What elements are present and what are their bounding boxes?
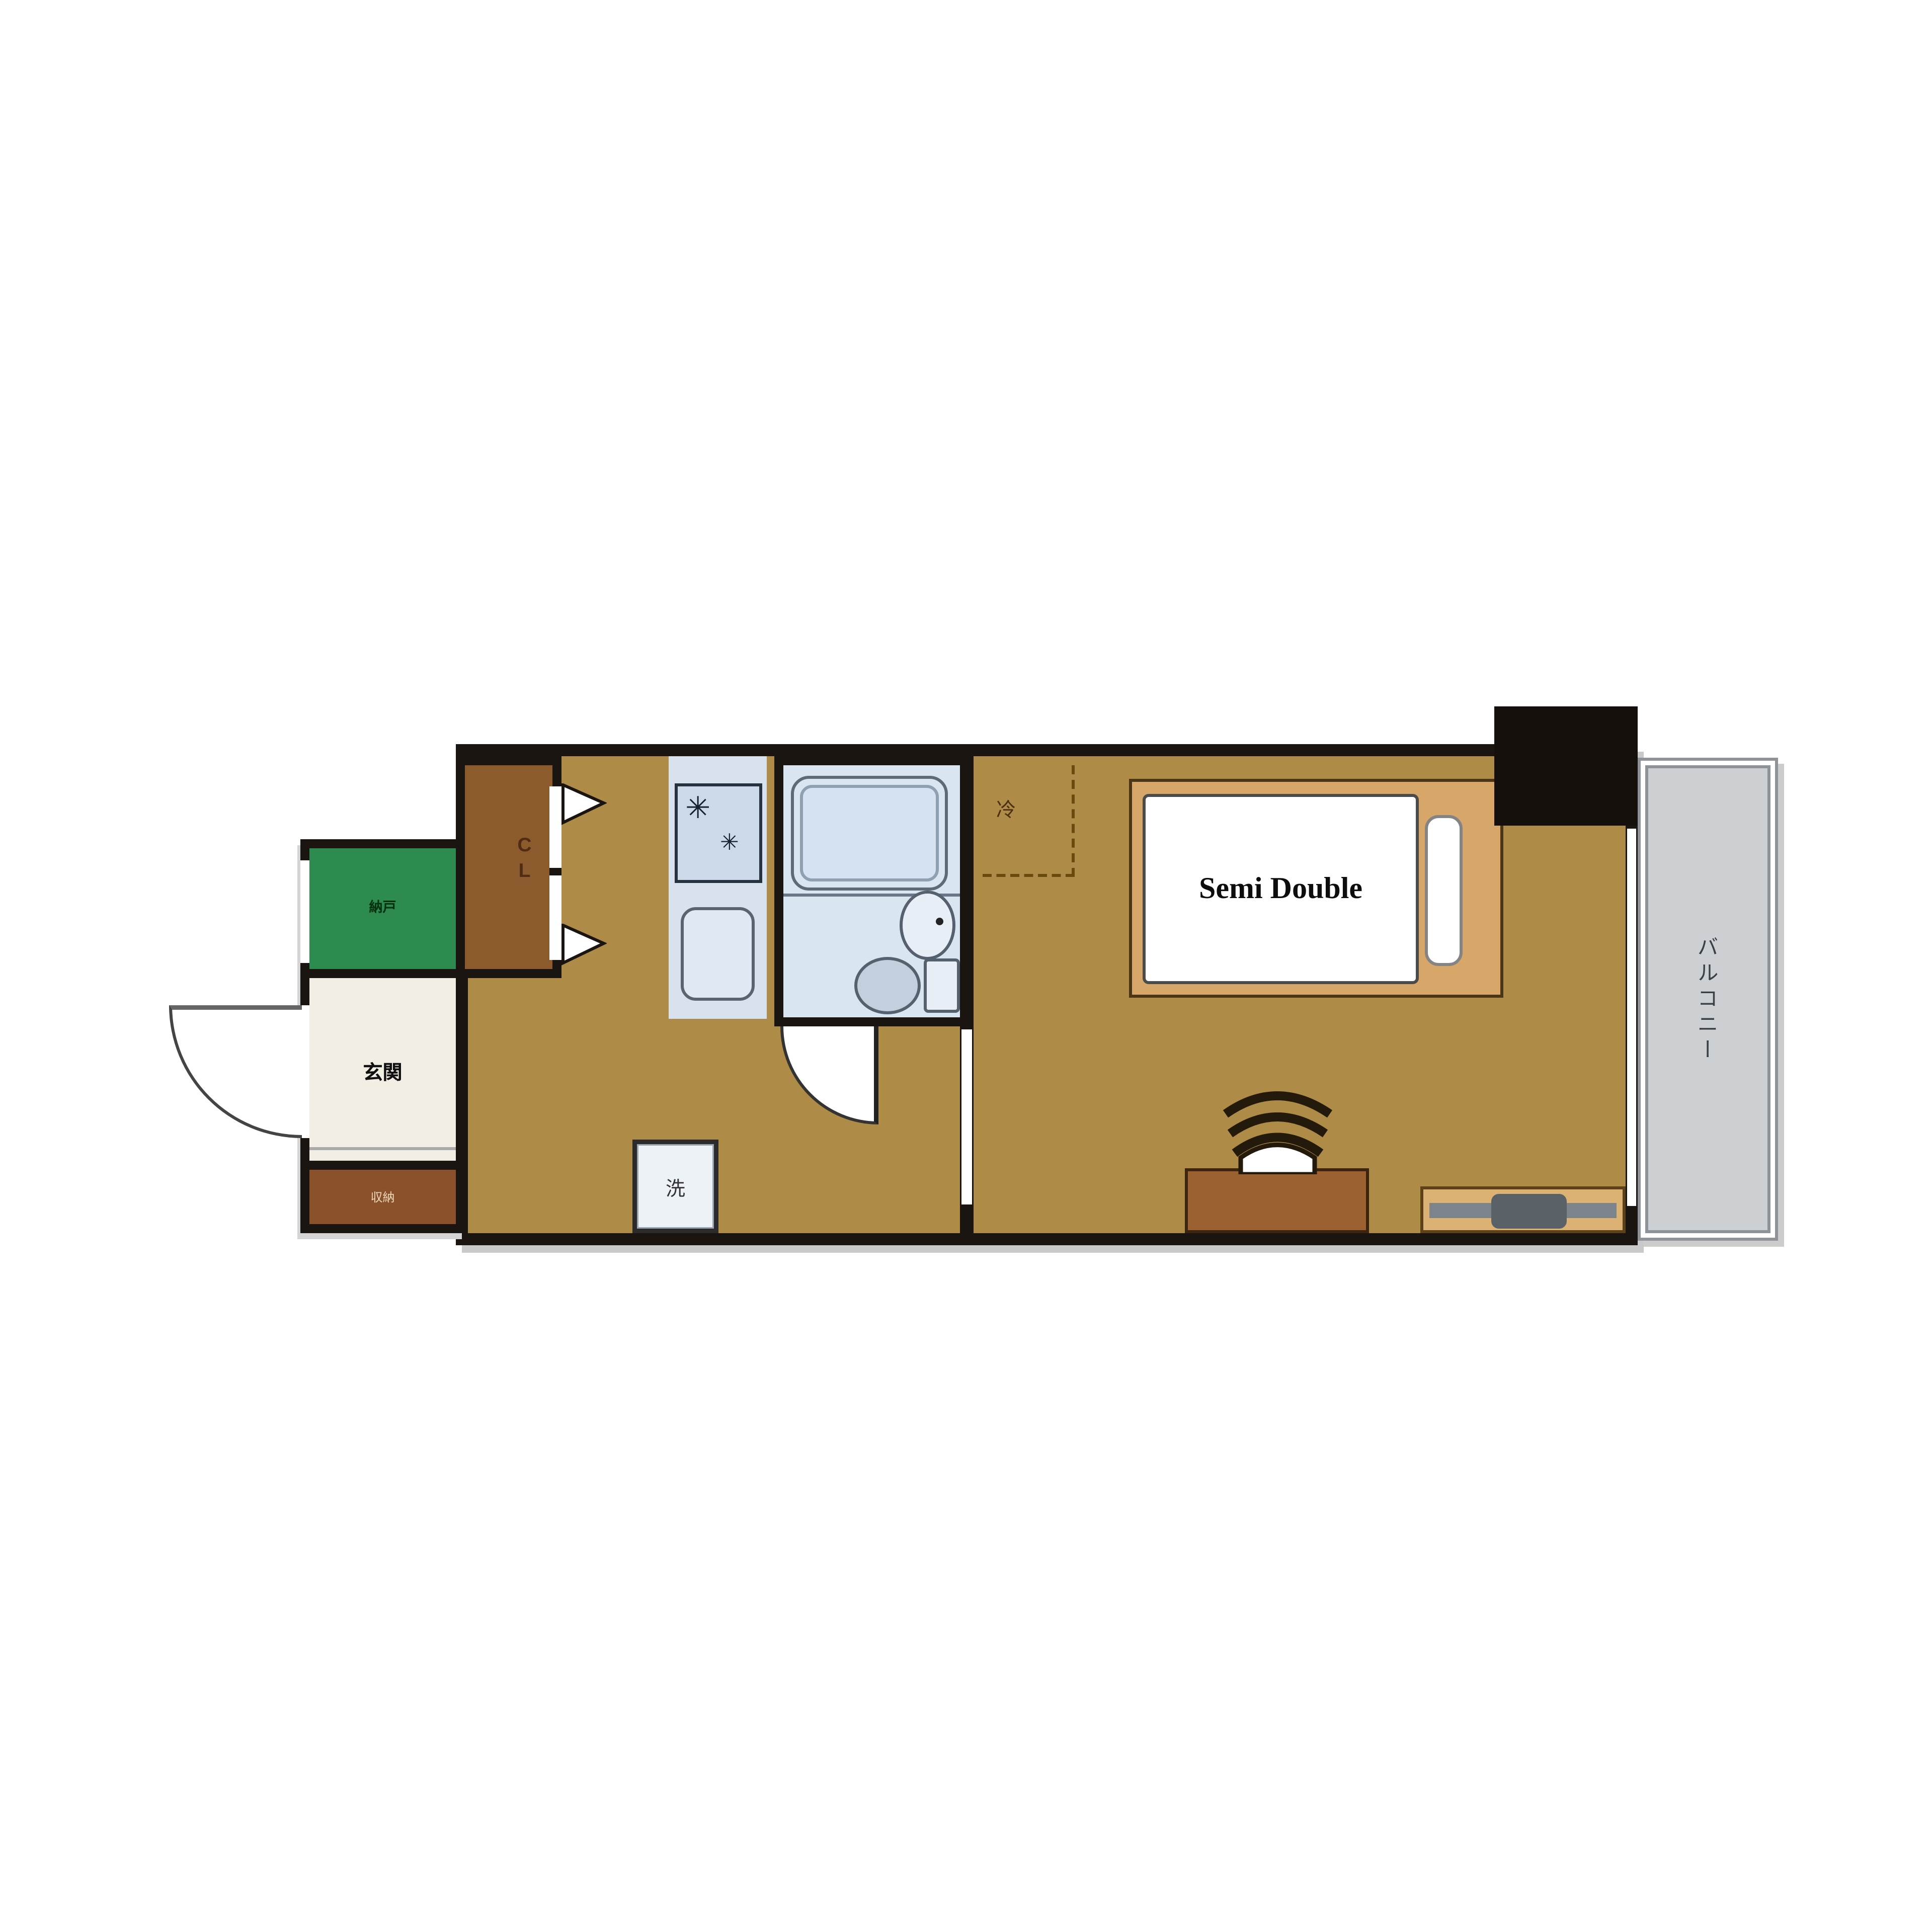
closet-bifold-door-icon	[561, 924, 607, 966]
toilet-bowl	[854, 957, 921, 1014]
structural-pillar	[1494, 706, 1638, 826]
bathtub	[791, 776, 948, 891]
balcony-label: バルコニー	[1693, 935, 1723, 1064]
balcony-window	[1627, 829, 1636, 1206]
chair-icon	[1217, 1075, 1339, 1174]
closet-label: CL	[483, 833, 534, 884]
stove-top: ✳ ✳	[675, 783, 762, 883]
closet-bifold-door-icon	[561, 783, 607, 826]
entrance-door-swing-icon	[169, 1005, 302, 1138]
tv-icon	[1491, 1194, 1567, 1229]
kitchen-sink	[681, 907, 755, 1001]
bed-pillow	[1425, 815, 1463, 966]
stove-burner-icon: ✳	[720, 832, 739, 854]
bed-mattress: Semi Double	[1143, 794, 1419, 984]
refrigerator-label: 冷	[996, 794, 1016, 823]
left-wall-window	[300, 860, 309, 963]
balcony-floor: バルコニー	[1645, 765, 1770, 1233]
closet-door-track-divider	[549, 868, 561, 875]
genkan-step-line	[309, 1147, 456, 1150]
balcony-area: バルコニー	[1638, 758, 1778, 1241]
stove-burner-icon: ✳	[685, 794, 710, 824]
entrance-storage-label: 収納	[309, 1189, 456, 1206]
bathtub-inner	[800, 785, 939, 881]
genkan-label: 玄関	[309, 1057, 456, 1085]
basin-faucet-dot	[936, 918, 943, 925]
wash-basin	[900, 891, 955, 960]
green-storage-label: 納戸	[309, 897, 456, 916]
desk	[1185, 1168, 1369, 1233]
sliding-door	[961, 1029, 972, 1204]
bed-size-label: Semi Double	[1199, 872, 1362, 907]
floor-plan-canvas: CL ✳ ✳ 洗 冷 Semi Double	[0, 0, 1932, 1932]
toilet-tank	[924, 958, 960, 1013]
washing-machine: 洗	[632, 1140, 718, 1233]
washing-machine-label: 洗	[666, 1172, 685, 1201]
